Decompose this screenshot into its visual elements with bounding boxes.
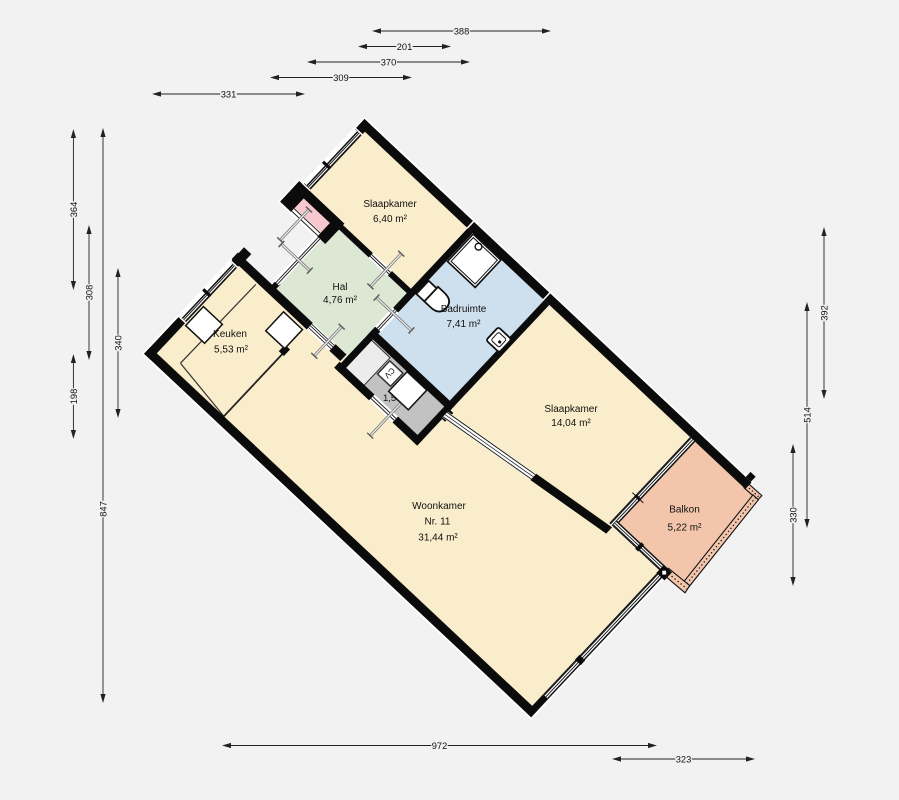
svg-text:31,44 m²: 31,44 m² [418, 533, 458, 544]
svg-text:14,04 m²: 14,04 m² [551, 418, 591, 429]
svg-text:388: 388 [454, 26, 470, 36]
svg-text:340: 340 [113, 335, 123, 351]
svg-text:Hal: Hal [332, 282, 347, 293]
svg-text:Slaapkamer: Slaapkamer [544, 404, 598, 415]
svg-text:Slaapkamer: Slaapkamer [363, 199, 417, 210]
svg-text:370: 370 [381, 57, 397, 67]
svg-text:392: 392 [819, 305, 829, 321]
svg-text:309: 309 [333, 73, 349, 83]
svg-text:198: 198 [69, 389, 79, 405]
svg-text:Nr. 11: Nr. 11 [425, 517, 451, 528]
svg-text:Keuken: Keuken [213, 329, 247, 340]
svg-text:Balkon: Balkon [669, 505, 700, 516]
svg-text:4,76 m²: 4,76 m² [323, 295, 358, 306]
svg-text:7,41 m²: 7,41 m² [447, 319, 482, 330]
svg-text:331: 331 [221, 89, 237, 99]
svg-text:6,40 m²: 6,40 m² [373, 214, 408, 225]
svg-text:847: 847 [98, 501, 108, 517]
svg-text:Woonkamer: Woonkamer [412, 501, 466, 512]
svg-text:Badruimte: Badruimte [441, 304, 487, 315]
svg-text:364: 364 [69, 202, 79, 218]
svg-text:330: 330 [788, 507, 798, 523]
svg-text:201: 201 [397, 42, 413, 52]
svg-text:972: 972 [432, 741, 448, 751]
svg-text:5,22 m²: 5,22 m² [668, 523, 703, 534]
svg-text:5,53 m²: 5,53 m² [214, 345, 249, 356]
svg-text:308: 308 [84, 285, 94, 301]
svg-text:514: 514 [802, 407, 812, 423]
svg-text:323: 323 [676, 754, 692, 764]
